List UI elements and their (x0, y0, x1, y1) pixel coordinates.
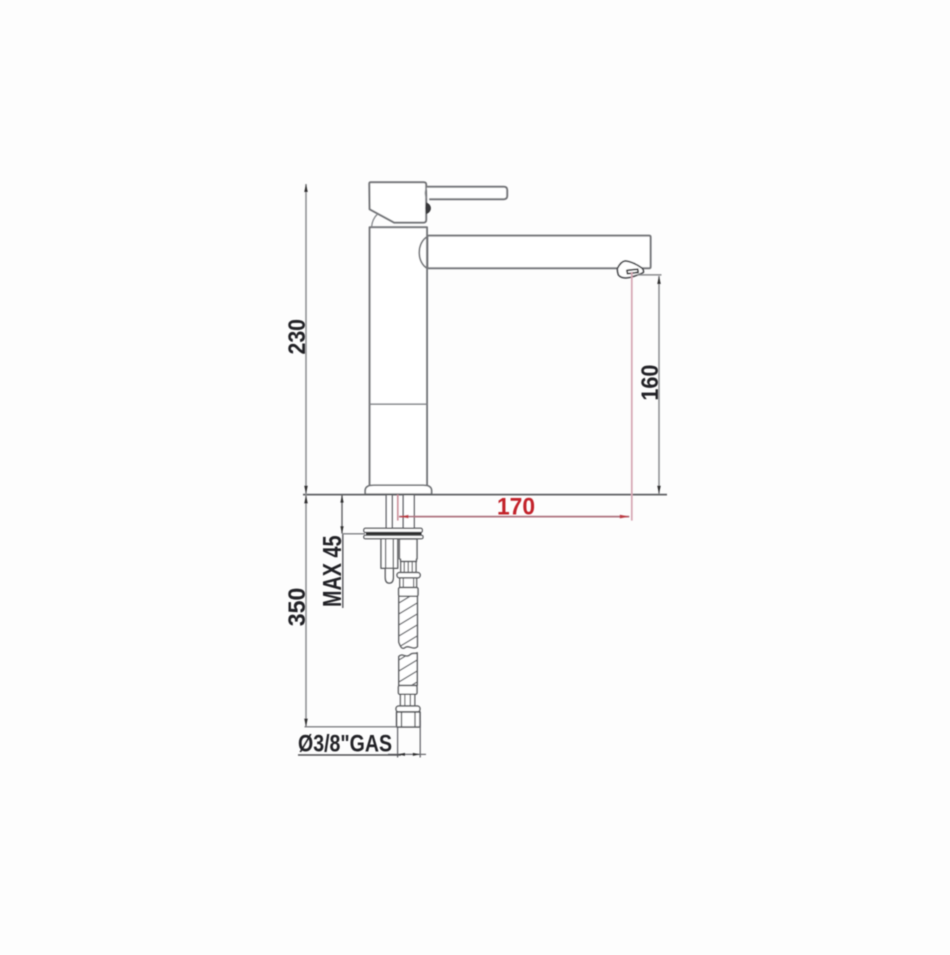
svg-text:MAX 45: MAX 45 (317, 536, 347, 608)
svg-text:230: 230 (284, 319, 311, 355)
svg-text:160: 160 (637, 365, 664, 401)
svg-text:350: 350 (284, 588, 311, 627)
svg-text:170: 170 (497, 494, 535, 521)
svg-text:Ø3/8"GAS: Ø3/8"GAS (298, 730, 392, 757)
